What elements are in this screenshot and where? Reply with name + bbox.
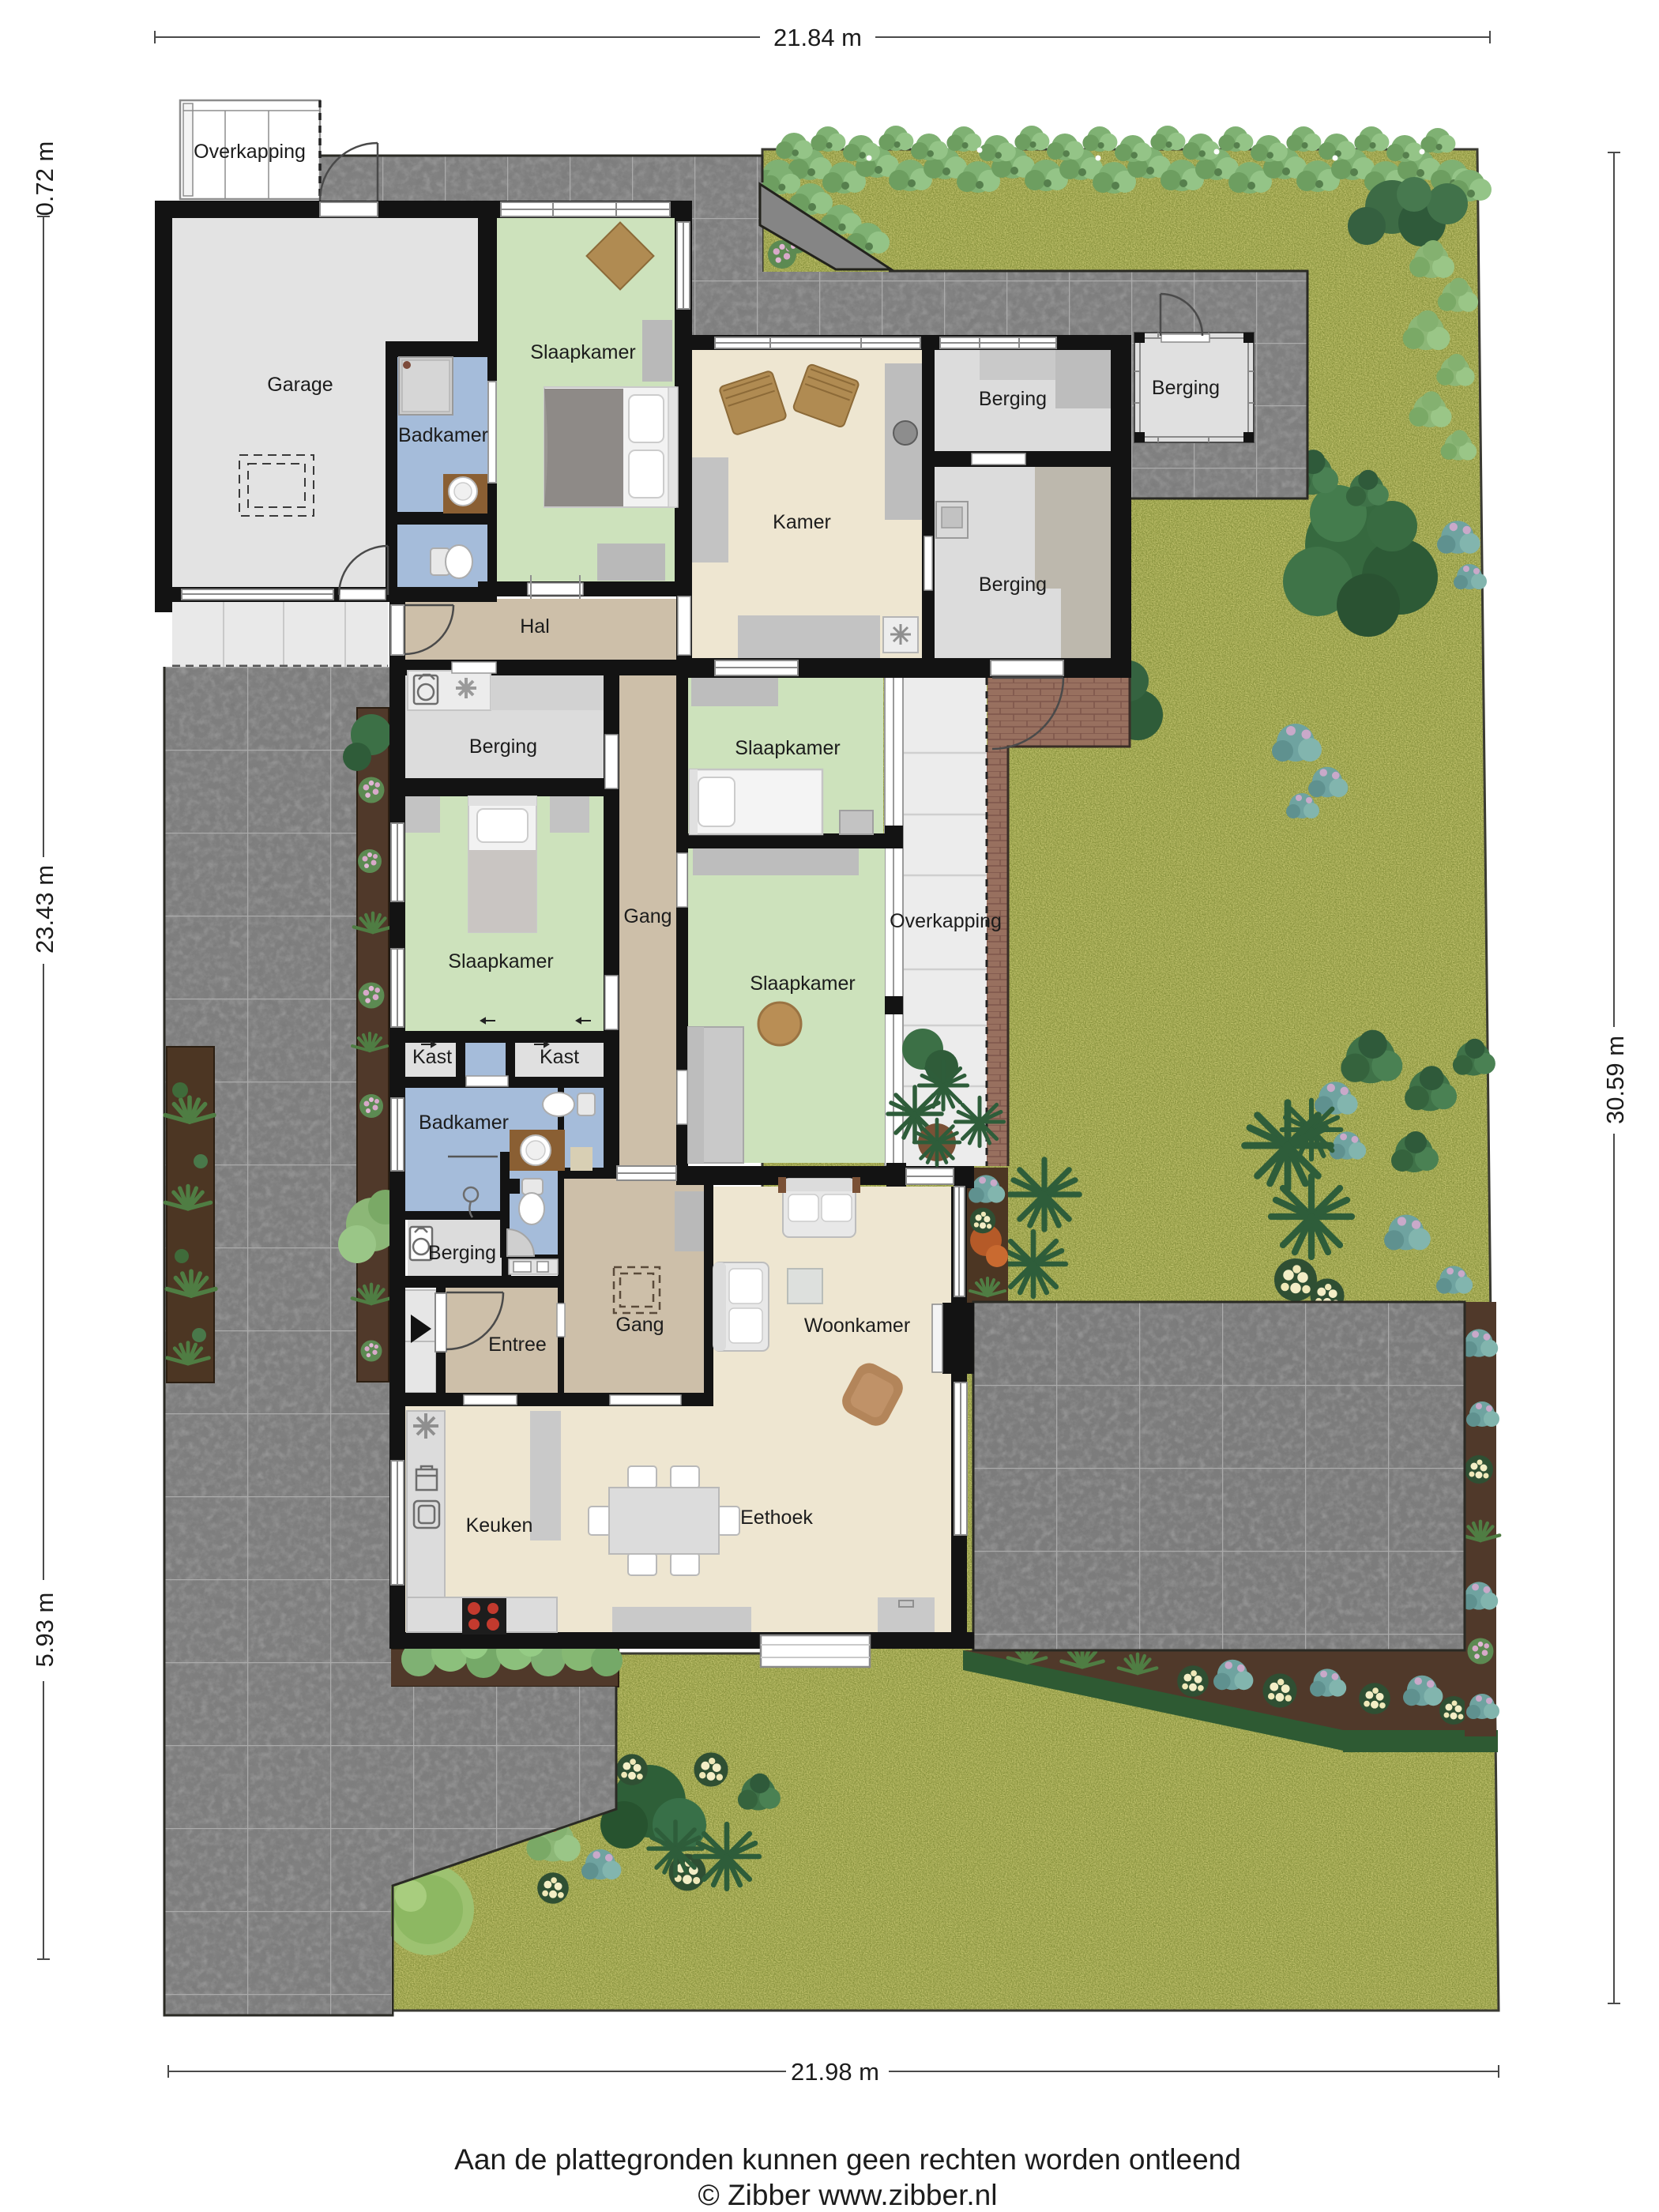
svg-text:Hal: Hal xyxy=(520,615,550,638)
svg-text:Kast: Kast xyxy=(540,1046,579,1068)
svg-text:Garage: Garage xyxy=(267,374,333,396)
svg-text:23.43 m: 23.43 m xyxy=(31,865,58,954)
svg-text:5.93 m: 5.93 m xyxy=(31,1593,58,1668)
svg-text:21.98 m: 21.98 m xyxy=(791,2058,879,2086)
svg-text:Aan de plattegronden kunnen ge: Aan de plattegronden kunnen geen rechten… xyxy=(454,2143,1241,2176)
svg-text:Berging: Berging xyxy=(979,388,1047,410)
svg-text:Overkapping: Overkapping xyxy=(890,910,1002,932)
svg-text:© Zibber www.zibber.nl: © Zibber www.zibber.nl xyxy=(698,2179,998,2211)
svg-text:Eethoek: Eethoek xyxy=(740,1507,813,1529)
svg-text:Berging: Berging xyxy=(979,574,1047,596)
svg-text:Slaapkamer: Slaapkamer xyxy=(735,737,840,759)
svg-text:Woonkamer: Woonkamer xyxy=(804,1315,910,1337)
svg-text:Kamer: Kamer xyxy=(773,511,831,533)
svg-text:Slaapkamer: Slaapkamer xyxy=(750,972,855,995)
svg-text:Badkamer: Badkamer xyxy=(398,424,488,446)
svg-text:Slaapkamer: Slaapkamer xyxy=(530,341,635,363)
svg-text:Kast: Kast xyxy=(412,1046,452,1068)
svg-text:Berging: Berging xyxy=(469,735,537,758)
svg-text:Berging: Berging xyxy=(428,1242,496,1264)
svg-text:Keuken: Keuken xyxy=(466,1514,533,1537)
svg-text:Overkapping: Overkapping xyxy=(194,141,306,163)
svg-text:Slaapkamer: Slaapkamer xyxy=(448,950,553,972)
svg-text:Gang: Gang xyxy=(615,1314,664,1336)
svg-text:Badkamer: Badkamer xyxy=(419,1112,509,1134)
svg-text:30.59 m: 30.59 m xyxy=(1601,1036,1629,1124)
svg-text:21.84 m: 21.84 m xyxy=(773,24,862,51)
svg-text:Entree: Entree xyxy=(488,1334,547,1356)
svg-text:Berging: Berging xyxy=(1152,377,1220,399)
svg-text:0.72 m: 0.72 m xyxy=(31,141,58,216)
svg-text:Gang: Gang xyxy=(623,905,671,927)
